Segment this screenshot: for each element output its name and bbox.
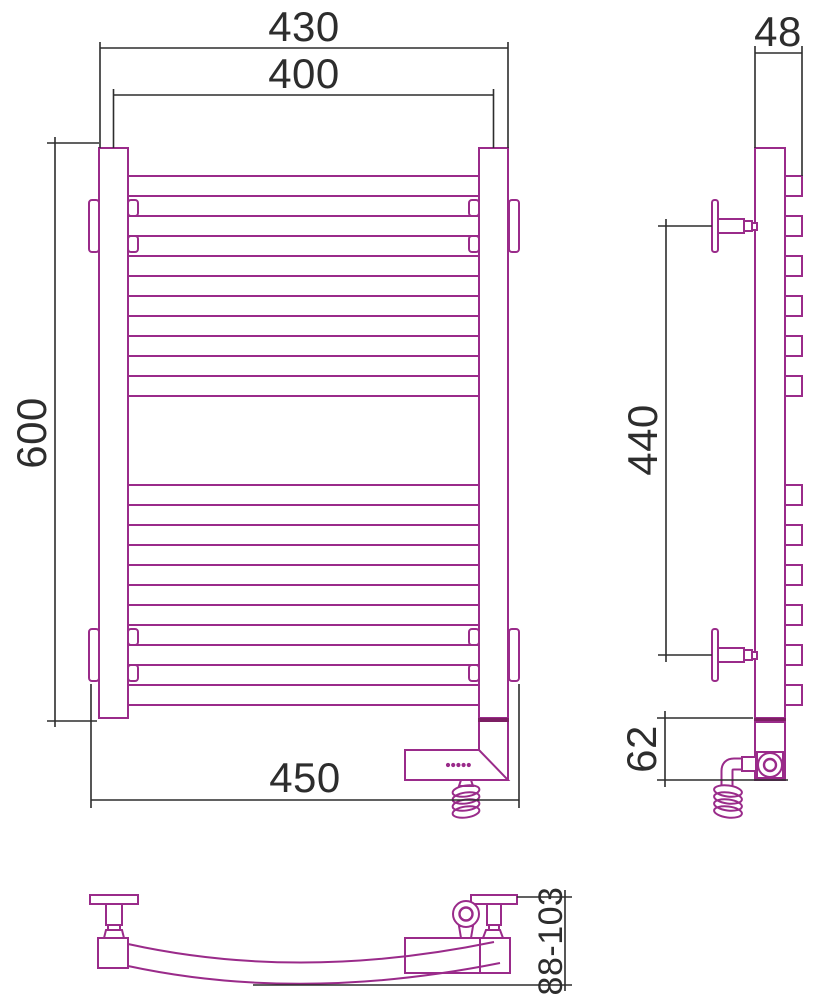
rung [128, 565, 479, 585]
dim-line [253, 890, 572, 991]
bracket-tab [128, 236, 138, 252]
bracket-screw-tip [752, 223, 757, 230]
bottom-view [90, 895, 517, 984]
rung-stub [785, 685, 802, 705]
power-cord-coil [713, 784, 742, 819]
wall-bracket-side-bottom [712, 629, 757, 681]
indicator-dot [446, 763, 450, 767]
dim-label-side-depth: 48 [754, 8, 802, 55]
rung-stub [785, 485, 802, 505]
rung-stub [785, 565, 802, 585]
bracket-foot [483, 930, 503, 938]
wall-bracket-side-top [712, 200, 757, 252]
wall-bracket-plate [509, 200, 519, 252]
dim-label-overall-height: 600 [8, 397, 55, 469]
rung [128, 685, 479, 705]
bracket-stem [718, 648, 744, 662]
bracket-stem [106, 904, 122, 925]
rung [128, 485, 479, 505]
front-view [89, 148, 519, 819]
bracket-tab [128, 200, 138, 216]
dim-label-wall-offset: 88-103 [532, 887, 570, 996]
towel-rail-technical-drawing: 430 400 600 450 48 440 62 88-103 [0, 0, 816, 1000]
post-profile [755, 148, 785, 718]
rung-stub [785, 645, 802, 665]
arc-tube-inner-line [128, 942, 494, 963]
dim-label-bracket-span: 440 [619, 404, 666, 476]
bracket-tab [128, 665, 138, 681]
dim-rail-width: 400 [114, 50, 494, 148]
rung [128, 256, 479, 276]
rung [128, 525, 479, 545]
bracket-tab [128, 629, 138, 645]
cable-connector [742, 757, 756, 771]
coil-loop [713, 805, 742, 819]
rung [128, 336, 479, 356]
coil-loop [452, 805, 480, 820]
rung [128, 216, 479, 236]
dim-overall-height: 600 [8, 137, 99, 727]
rung-stub [785, 336, 802, 356]
rung [128, 645, 479, 665]
rung-stub [785, 256, 802, 276]
regulator-knob [453, 901, 479, 927]
dim-line [114, 89, 494, 148]
indicator-dot [467, 763, 471, 767]
wall-bracket-plate [89, 200, 99, 252]
bracket-stem [718, 219, 744, 233]
bracket-flange-bar [90, 895, 138, 904]
bracket-tab [469, 665, 479, 681]
wall-bracket-plate [89, 629, 99, 681]
rung [128, 176, 479, 196]
left-end-block [98, 938, 128, 968]
rung-stubs [785, 176, 802, 705]
post-joint-band [478, 718, 509, 722]
bracket-screw-tip [752, 652, 757, 659]
regulator-knob [758, 753, 782, 777]
bracket-tab [469, 236, 479, 252]
rung [128, 296, 479, 316]
heater-unit-side [713, 718, 786, 819]
dim-wall-offset: 88-103 [253, 887, 572, 996]
rung-stub [785, 525, 802, 545]
bracket-nut [744, 650, 752, 660]
rung-stub [785, 605, 802, 625]
dim-label-mounting-width: 450 [269, 754, 341, 801]
dim-label-rail-width: 400 [268, 50, 340, 97]
rung-stub [785, 216, 802, 236]
right-post [479, 148, 508, 718]
indicator-dot [462, 763, 466, 767]
bracket-nut [744, 221, 752, 231]
bracket-plates [89, 200, 519, 681]
bracket-flange-bar [471, 895, 517, 904]
bracket-tabs [128, 200, 479, 681]
indicator-dot [451, 763, 455, 767]
wall-bracket-plan-left [90, 895, 138, 938]
dim-bracket-span: 440 [619, 219, 712, 662]
power-cord-coil [452, 784, 480, 820]
bracket-tab [469, 629, 479, 645]
dim-line [658, 219, 712, 662]
regulator-knob-plan [453, 901, 479, 938]
rung-stub [785, 296, 802, 316]
wall-bracket-plate [509, 629, 519, 681]
left-post [99, 148, 128, 718]
rung-stub [785, 376, 802, 396]
heater-unit-front [405, 718, 509, 819]
bracket-stem [487, 904, 501, 925]
rung [128, 376, 479, 396]
bracket-tab [469, 200, 479, 216]
rung-stub [785, 176, 802, 196]
rung [128, 605, 479, 625]
indicator-dot [456, 763, 460, 767]
dim-label-overall-width: 430 [268, 3, 340, 50]
bracket-foot [104, 930, 124, 938]
rungs [128, 176, 479, 705]
dim-label-heater-height: 62 [618, 725, 665, 773]
